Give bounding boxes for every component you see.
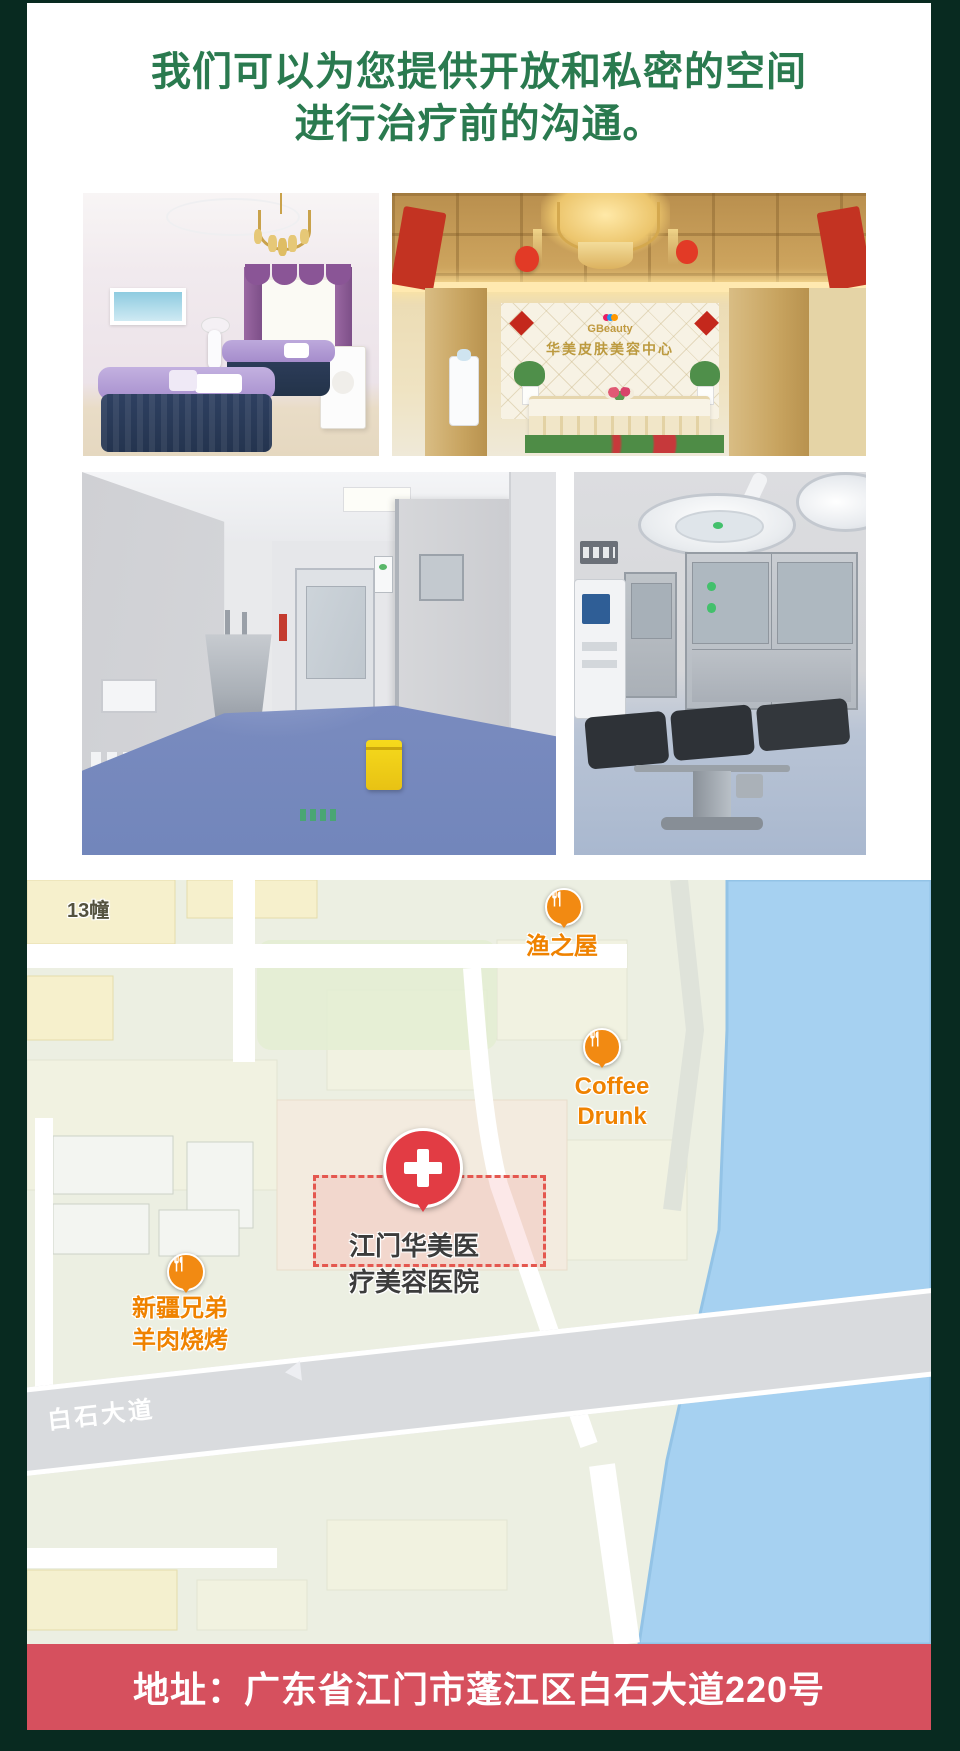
- surgical-lamp-icon: [796, 472, 866, 532]
- page-title-line1: 我们可以为您提供开放和私密的空间: [27, 46, 931, 98]
- frame-border-bottom: [0, 1730, 960, 1751]
- door-control-panel: [374, 556, 393, 592]
- operating-room-photo: [574, 472, 866, 855]
- steel-cabinet-large: [685, 552, 858, 709]
- fish-house-label: 渔之屋: [492, 932, 632, 962]
- water-dispenser: [449, 356, 479, 426]
- location-map: 白石大道 13幢 渔之屋 Coffee Drunk 江门华美医 疗美容医院 新疆…: [27, 880, 931, 1644]
- steel-cabinet-small: [624, 572, 678, 699]
- seascape-frame: [110, 288, 186, 325]
- address-text: 地址：广东省江门市蓬江区白石大道220号: [133, 1661, 825, 1713]
- bed-front: [98, 367, 276, 454]
- hospital-name-label: 江门华美医 疗美容医院: [314, 1228, 514, 1300]
- frame-border-top: [0, 0, 960, 3]
- hospital-name-line2: 疗美容医院: [314, 1264, 514, 1300]
- fire-alarm: [279, 614, 288, 641]
- wall-switch-panel: [580, 541, 618, 564]
- restaurant-pin-icon: [167, 1253, 205, 1291]
- chandelier-icon: [525, 193, 686, 282]
- far-right-wall: [809, 288, 866, 456]
- red-lantern-icon: [676, 240, 697, 264]
- address-banner: 地址：广东省江门市蓬江区白石大道220号: [27, 1644, 931, 1730]
- frame-border-right: [931, 0, 960, 1751]
- operating-table: [586, 694, 855, 847]
- bbq-label-line2: 羊肉烧烤: [100, 1326, 260, 1356]
- wall-access-panel: [101, 679, 157, 714]
- page-title-line2: 进行治疗前的沟通。: [27, 98, 931, 150]
- medical-cross-icon: [404, 1149, 442, 1187]
- bbq-label-line1: 新疆兄弟: [100, 1294, 260, 1324]
- corridor-photo: [82, 472, 556, 855]
- clinic-promo-page: 我们可以为您提供开放和私密的空间 进行治疗前的沟通。: [0, 0, 960, 1751]
- reception-sign: GBeauty 华美皮肤美容中心: [539, 314, 681, 359]
- red-lantern-icon: [515, 246, 539, 272]
- coffee-drunk-label-line2: Drunk: [532, 1102, 692, 1132]
- treatment-room-photo: [83, 193, 379, 456]
- lobby-sign-text: 华美皮肤美容中心: [546, 339, 674, 359]
- lobby-photo: GBeauty 华美皮肤美容中心: [392, 193, 866, 456]
- surgical-lamp-icon: [638, 480, 790, 557]
- curtain-valance: [244, 264, 352, 285]
- reception-desk: [529, 396, 709, 438]
- restaurant-pin-icon: [583, 1028, 621, 1066]
- floor-sign: [300, 809, 338, 820]
- restaurant-pin-icon: [545, 888, 583, 926]
- right-column: [729, 288, 810, 456]
- lobby-logo-text: GBeauty: [587, 323, 632, 335]
- building-13-label: 13幢: [67, 894, 109, 923]
- page-title: 我们可以为您提供开放和私密的空间 进行治疗前的沟通。: [27, 46, 931, 150]
- coffee-drunk-label-line1: Coffee: [532, 1072, 692, 1102]
- hospital-name-line1: 江门华美医: [314, 1228, 514, 1264]
- frame-border-left: [0, 0, 27, 1751]
- yellow-bin: [366, 740, 402, 790]
- flower-row: [525, 435, 724, 453]
- chandelier-icon: [252, 193, 311, 261]
- road-direction-arrow-icon: [274, 1361, 302, 1384]
- hospital-pin-icon: [383, 1128, 463, 1208]
